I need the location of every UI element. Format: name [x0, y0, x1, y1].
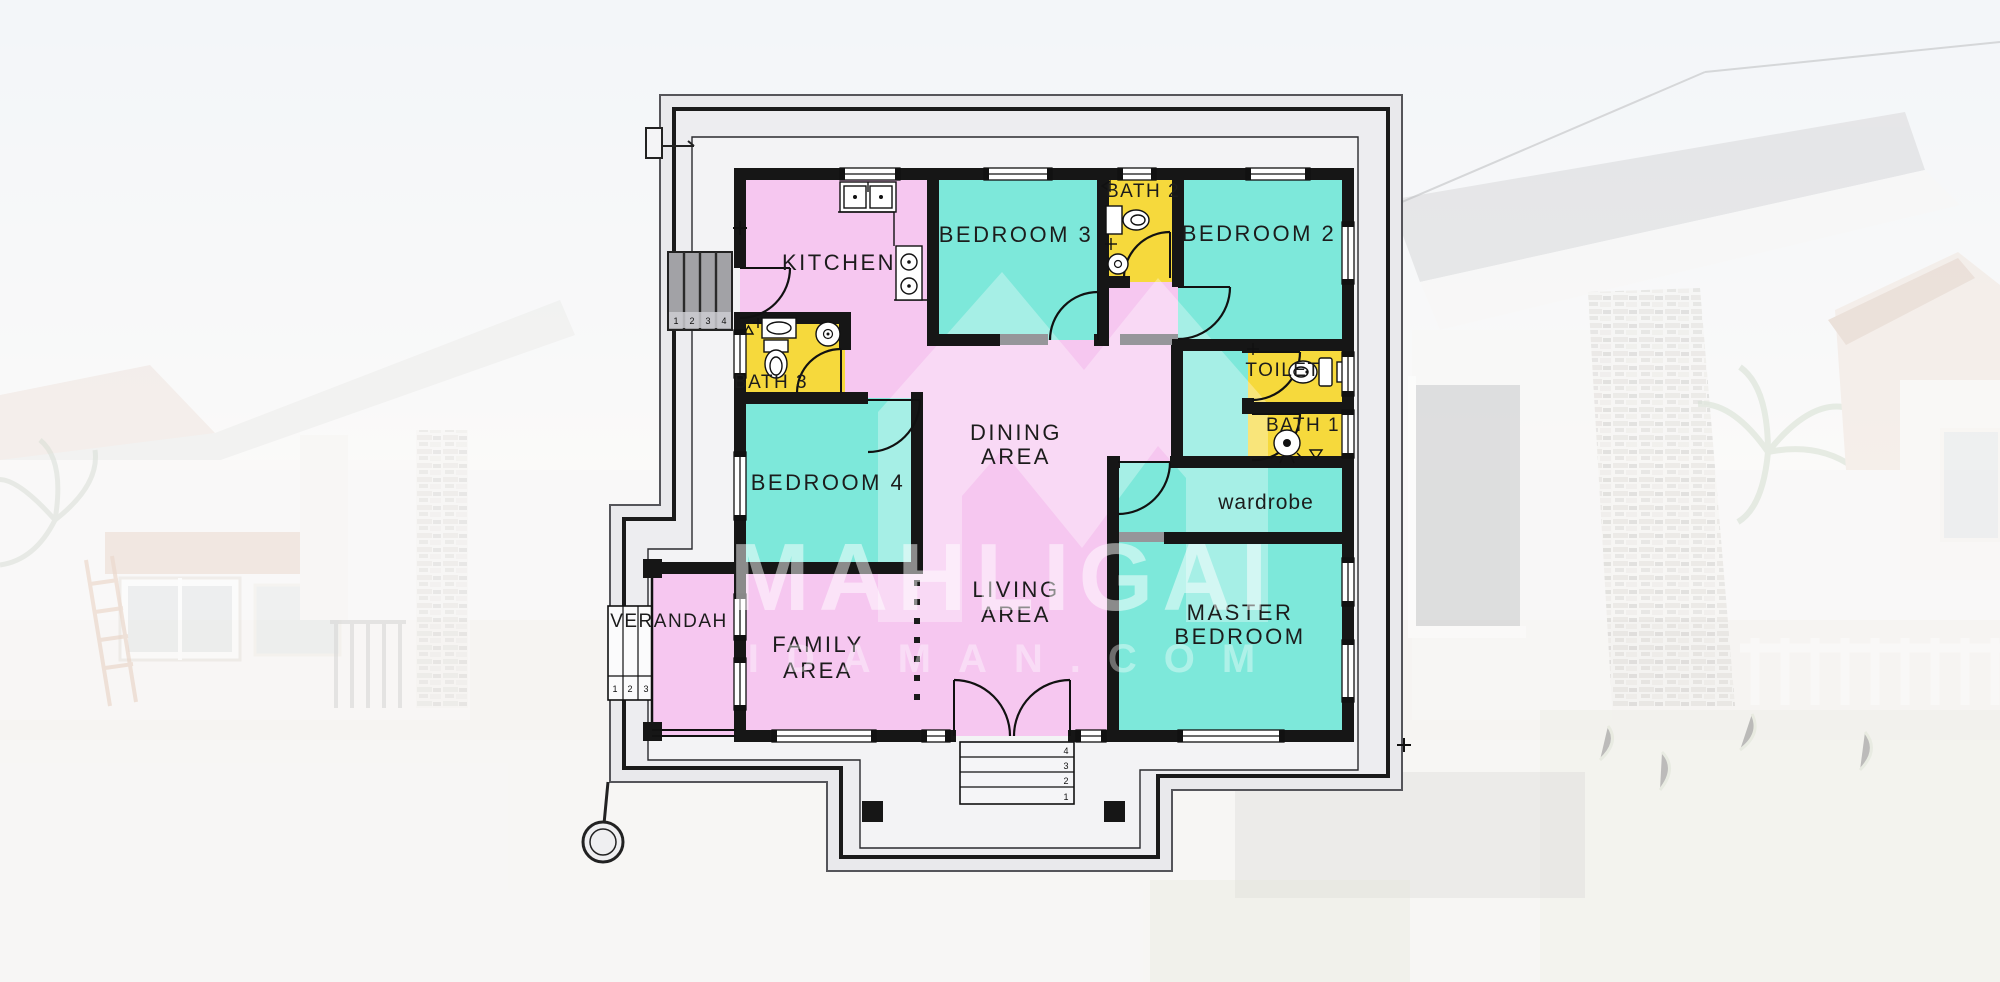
step-number: 2: [1063, 776, 1068, 786]
room-label-bath2: BATH 2: [1106, 181, 1180, 202]
room-label-bedroom2: BEDROOM 2: [1182, 221, 1337, 246]
window-symbol: [734, 330, 746, 378]
room-label-bedroom4: BEDROOM 4: [751, 470, 906, 495]
window-symbol: [1342, 558, 1354, 606]
room-label-wardrobe: wardrobe: [1217, 491, 1314, 514]
watermark-text: MAHLIGAI IDAMAN.COM: [730, 524, 1283, 681]
window-symbol: [1246, 168, 1310, 180]
room-label-bedroom3: BEDROOM 3: [939, 222, 1094, 247]
corner-ornament: [583, 822, 623, 862]
window-symbol: [922, 730, 950, 742]
step-number: 1: [673, 316, 678, 326]
watermark-brand: MAHLIGAI: [730, 524, 1277, 631]
porch-column: [1104, 801, 1125, 822]
window-symbol: [1342, 352, 1354, 396]
window-symbol: [1118, 168, 1156, 180]
door-threshold: [1000, 334, 1048, 345]
step-number: 3: [643, 684, 648, 694]
front-steps: 4 3 2 1: [960, 742, 1074, 804]
kitchen-side-stairs: 1 2 3 4: [668, 252, 732, 330]
step-number: 3: [705, 316, 710, 326]
room-verandah: [652, 568, 740, 736]
kitchen-sink-icon: [840, 182, 896, 212]
door-threshold: [1120, 334, 1178, 345]
floor-plan: 4 3 2 1 1 2 3 4 1 2 3: [560, 60, 1460, 900]
downspout-marker: [646, 128, 662, 158]
room-label-kitchen: KITCHEN: [782, 250, 896, 275]
watermark-domain: IDAMAN.COM: [748, 637, 1282, 681]
room-label-bath3: BATH 3: [734, 372, 808, 393]
step-number: 3: [1063, 761, 1068, 771]
room-label-toilet: TOILET: [1245, 360, 1320, 381]
room-bedroom2: [1178, 174, 1348, 345]
window-symbol: [1178, 730, 1284, 742]
window-symbol: [734, 658, 746, 710]
step-number: 1: [1063, 792, 1068, 802]
window-symbol: [1342, 640, 1354, 702]
window-symbol: [772, 730, 876, 742]
window-symbol: [840, 168, 900, 180]
step-number: 2: [689, 316, 694, 326]
room-label-dining-2: AREA: [981, 444, 1051, 469]
step-number: 4: [1063, 746, 1068, 756]
stove-icon: [896, 246, 922, 300]
step-number: 4: [721, 316, 726, 326]
window-symbol: [1342, 410, 1354, 458]
room-label-bath1: BATH 1: [1266, 415, 1340, 436]
window-symbol: [984, 168, 1052, 180]
room-label-verandah: VERANDAH: [610, 611, 728, 632]
room-label-dining-1: DINING: [970, 420, 1062, 445]
window-symbol: [1342, 222, 1354, 284]
window-symbol: [1076, 730, 1106, 742]
window-symbol: [734, 452, 746, 520]
step-number: 1: [612, 684, 617, 694]
porch-column: [862, 801, 883, 822]
step-number: 2: [627, 684, 632, 694]
